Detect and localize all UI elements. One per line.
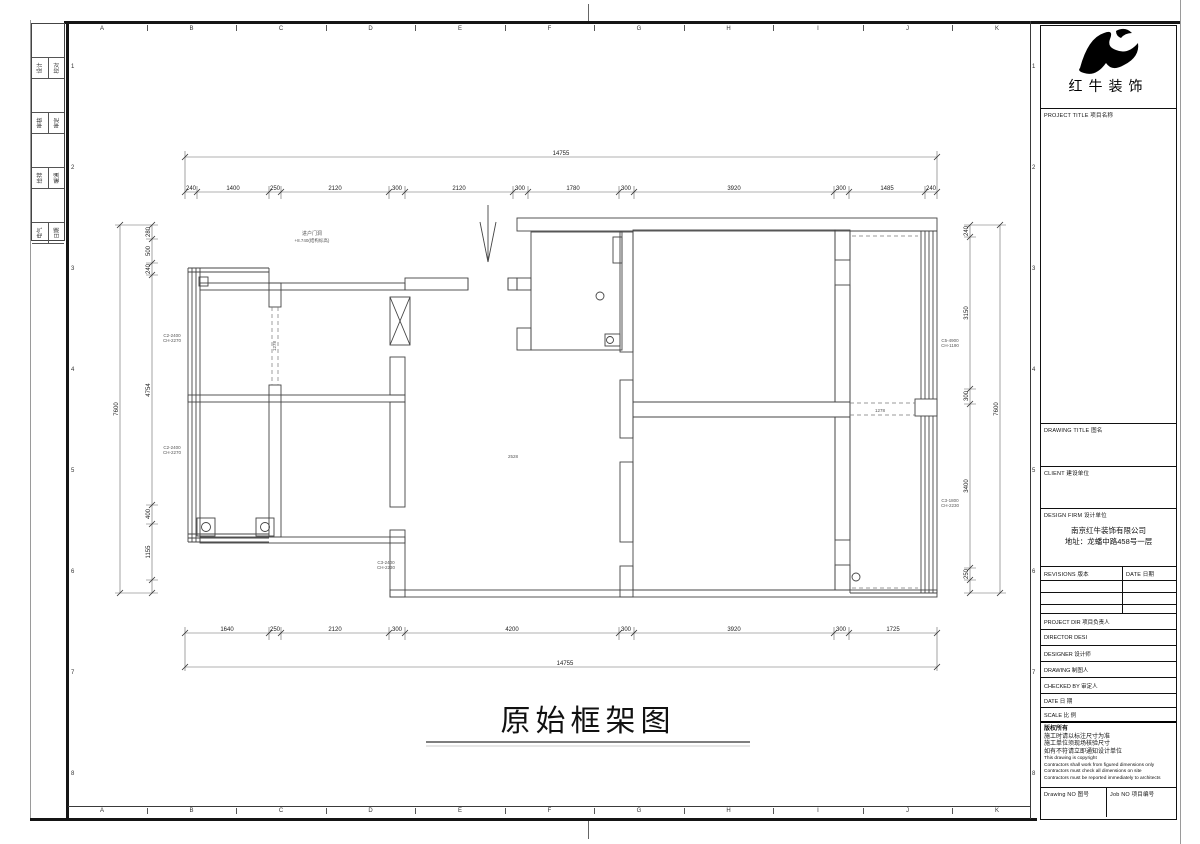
grid-letter: J	[906, 808, 909, 814]
grid-tick	[505, 25, 506, 31]
client-label: CLIENT 建设单位	[1044, 469, 1089, 477]
company-name: 红牛装饰	[1069, 76, 1149, 96]
dim-left: 1155	[146, 545, 152, 559]
scale-row: SCALE 比 例	[1041, 707, 1176, 721]
grid-letter: A	[100, 808, 104, 814]
drawing-title: 原始框架图	[501, 705, 676, 738]
drawing-no-divider	[1106, 788, 1107, 817]
grid-number: 2	[1032, 165, 1035, 171]
plan-dashed-openings	[272, 236, 918, 588]
dim-top-total: 14755	[553, 151, 570, 157]
dim-top: 2120	[452, 186, 466, 192]
checked-by-label: CHECKED BY 审定人	[1044, 682, 1098, 690]
copyright-section: 版权所有施工时请以标注尺寸为准施工单位须现场核验尺寸如有不符请立即通知设计单位T…	[1041, 721, 1176, 787]
design-firm-label: DESIGN FIRM 设计单位	[1044, 511, 1107, 519]
dim-top: 1485	[880, 186, 894, 192]
copyright-line: 如有不符请立即通知设计单位	[1044, 749, 1173, 757]
dim-top: 3920	[727, 186, 741, 192]
floor-plan: 14755 240 1400 250 2120 300 2120 300 178…	[0, 0, 1200, 844]
drawing-label: DRAWING 制图人	[1044, 666, 1088, 674]
grid-number: 6	[71, 569, 74, 575]
grid-number: 4	[1032, 367, 1035, 373]
grid-number: 8	[1032, 771, 1035, 777]
copyright-line: Contractors must be reported immediately…	[1044, 776, 1173, 783]
grid-tick	[147, 808, 148, 814]
grid-number: 3	[1032, 266, 1035, 272]
title-block: 红牛装饰 PROJECT TITLE 项目名称 DRAWING TITLE 图名…	[1040, 25, 1177, 820]
grid-letter: I	[817, 26, 819, 32]
dim-left: 280	[146, 226, 152, 237]
grid-letter: B	[189, 26, 193, 32]
grid-number: 7	[71, 670, 74, 676]
date-row: DATE 日 期	[1041, 693, 1176, 707]
drawing-no-label: Drawing NO 图号	[1044, 790, 1089, 798]
dim-bottom: 300	[392, 627, 403, 633]
dim-top: 300	[621, 186, 632, 192]
grid-letter: D	[368, 26, 372, 32]
dim-bottom: 3920	[727, 627, 741, 633]
revision-row	[1041, 580, 1176, 592]
copyright-line: 施工时请以标注尺寸为准	[1044, 734, 1173, 742]
dim-top: 240	[926, 186, 937, 192]
grid-letter: C	[279, 26, 283, 32]
window-label: CH-2270	[163, 450, 182, 455]
revisions-section: REVISIONS 版本 DATE 日期	[1041, 566, 1176, 613]
dim-top: 300	[836, 186, 847, 192]
grid-letter: K	[995, 808, 999, 814]
dim-right: 240	[964, 225, 970, 236]
grid-tick	[236, 25, 237, 31]
grid-tick	[863, 25, 864, 31]
copyright-line: 施工单位须现场核验尺寸	[1044, 741, 1173, 749]
grid-tick	[773, 25, 774, 31]
grid-tick	[326, 808, 327, 814]
grid-letter: F	[548, 808, 552, 814]
drawing-title-section: DRAWING TITLE 图名	[1041, 423, 1176, 466]
grid-tick	[415, 808, 416, 814]
opening-label-left: 1278	[272, 340, 277, 351]
project-title-section: PROJECT TITLE 项目名称	[1041, 108, 1176, 423]
grid-letter: G	[637, 26, 642, 32]
logo-section: 红牛装饰	[1041, 26, 1176, 108]
grid-number: 3	[71, 266, 74, 272]
plan-annotations: 进户门洞 +8.740(结构标高) 2528 1278 1278 C2-2400…	[163, 230, 960, 570]
date-col-label: DATE 日期	[1126, 570, 1154, 578]
grid-tick	[684, 25, 685, 31]
director-label: DIRECTOR DESI	[1044, 635, 1087, 641]
grid-letter: K	[995, 26, 999, 32]
grid-tick	[863, 808, 864, 814]
director-row: DIRECTOR DESI	[1041, 629, 1176, 645]
revisions-label: REVISIONS 版本	[1044, 570, 1089, 578]
dim-right: 250	[964, 568, 970, 579]
checked-by-row: CHECKED BY 审定人	[1041, 677, 1176, 693]
room-code: 2528	[508, 454, 519, 459]
scale-label: SCALE 比 例	[1044, 711, 1076, 719]
grid-number: 7	[1032, 670, 1035, 676]
plan-walls	[188, 205, 937, 597]
dim-top: 1400	[226, 186, 240, 192]
dim-bottom: 250	[270, 627, 281, 633]
grid-number: 1	[1032, 64, 1035, 70]
grid-number: 4	[71, 367, 74, 373]
dim-top: 250	[270, 186, 281, 192]
grid-tick	[415, 25, 416, 31]
dim-top: 2120	[328, 186, 342, 192]
grid-tick	[952, 25, 953, 31]
window-label: CH-2270	[163, 338, 182, 343]
grid-letter: E	[458, 26, 462, 32]
grid-letter: A	[100, 26, 104, 32]
grid-number: 5	[1032, 468, 1035, 474]
date-label: DATE 日 期	[1044, 697, 1072, 705]
opening-label-right: 1278	[875, 408, 886, 413]
bull-logo-icon	[1072, 26, 1146, 78]
grid-tick	[684, 808, 685, 814]
entry-level-note: +8.740(结构标高)	[295, 237, 330, 244]
project-dir-row: PROJECT DIR 项目负责人	[1041, 613, 1176, 629]
design-firm-section: DESIGN FIRM 设计单位 南京红牛装饰有限公司 地址：龙蟠中路458号一…	[1041, 508, 1176, 566]
grid-number: 5	[71, 468, 74, 474]
revision-row	[1041, 604, 1176, 613]
grid-tick	[505, 808, 506, 814]
dim-right-total: 7600	[994, 402, 1000, 416]
grid-tick	[236, 808, 237, 814]
grid-letter: I	[817, 808, 819, 814]
grid-tick	[594, 808, 595, 814]
dim-right: 3400	[964, 479, 970, 493]
grid-letter: B	[189, 808, 193, 814]
dim-left: 500	[146, 245, 152, 256]
grid-letter: J	[906, 26, 909, 32]
grid-number: 8	[71, 771, 74, 777]
designer-row: DESIGNER 设计师	[1041, 645, 1176, 661]
grid-tick	[952, 808, 953, 814]
dim-top: 300	[515, 186, 526, 192]
dim-top: 240	[186, 186, 197, 192]
revision-row	[1041, 592, 1176, 604]
grid-letter: E	[458, 808, 462, 814]
dim-right: 300	[964, 390, 970, 401]
grid-number: 6	[1032, 569, 1035, 575]
client-section: CLIENT 建设单位	[1041, 466, 1176, 508]
dim-bottom-total: 14755	[557, 661, 574, 667]
dim-bottom: 2120	[328, 627, 342, 633]
grid-tick	[326, 25, 327, 31]
grid-letter: F	[548, 26, 552, 32]
grid-tick	[773, 808, 774, 814]
copyright-line: 版权所有	[1044, 726, 1173, 734]
grid-letter: D	[368, 808, 372, 814]
window-label: CH-1190	[941, 343, 959, 348]
dim-right: 3150	[964, 306, 970, 320]
drawing-title-label: DRAWING TITLE 图名	[1044, 426, 1103, 434]
grid-letter: G	[637, 808, 642, 814]
dim-left: 240	[146, 263, 152, 274]
dim-left: 400	[146, 508, 152, 519]
job-no-label: Job NO 项目编号	[1110, 790, 1154, 798]
dim-bottom: 1640	[220, 627, 234, 633]
dim-bottom: 1725	[886, 627, 900, 633]
grid-letter: H	[726, 808, 730, 814]
project-title-label: PROJECT TITLE 项目名称	[1044, 111, 1113, 119]
grid-tick	[594, 25, 595, 31]
design-firm-address: 地址：龙蟠中路458号一层	[1041, 536, 1176, 547]
grid-letter: H	[726, 26, 730, 32]
drawing-no-section: Drawing NO 图号 Job NO 项目编号	[1041, 787, 1176, 817]
dim-left: 4754	[146, 383, 152, 397]
dim-top: 1780	[566, 186, 580, 192]
grid-number: 2	[71, 165, 74, 171]
design-firm-name: 南京红牛装饰有限公司	[1041, 525, 1176, 536]
grid-tick	[147, 25, 148, 31]
dim-top: 300	[392, 186, 403, 192]
drawing-sheet: 设计校对审核审定给排暖通电气日期	[0, 0, 1200, 844]
project-dir-label: PROJECT DIR 项目负责人	[1044, 618, 1110, 626]
grid-number: 1	[71, 64, 74, 70]
designer-label: DESIGNER 设计师	[1044, 650, 1091, 658]
dim-bottom: 300	[836, 627, 847, 633]
entry-note: 进户门洞	[302, 230, 322, 237]
dim-bottom: 4200	[505, 627, 519, 633]
dim-bottom: 300	[621, 627, 632, 633]
dim-left-total: 7600	[114, 402, 120, 416]
grid-letter: C	[279, 808, 283, 814]
drawing-row: DRAWING 制图人	[1041, 661, 1176, 677]
window-label: CH-2230	[377, 565, 396, 570]
window-label: CH-2230	[941, 503, 960, 508]
